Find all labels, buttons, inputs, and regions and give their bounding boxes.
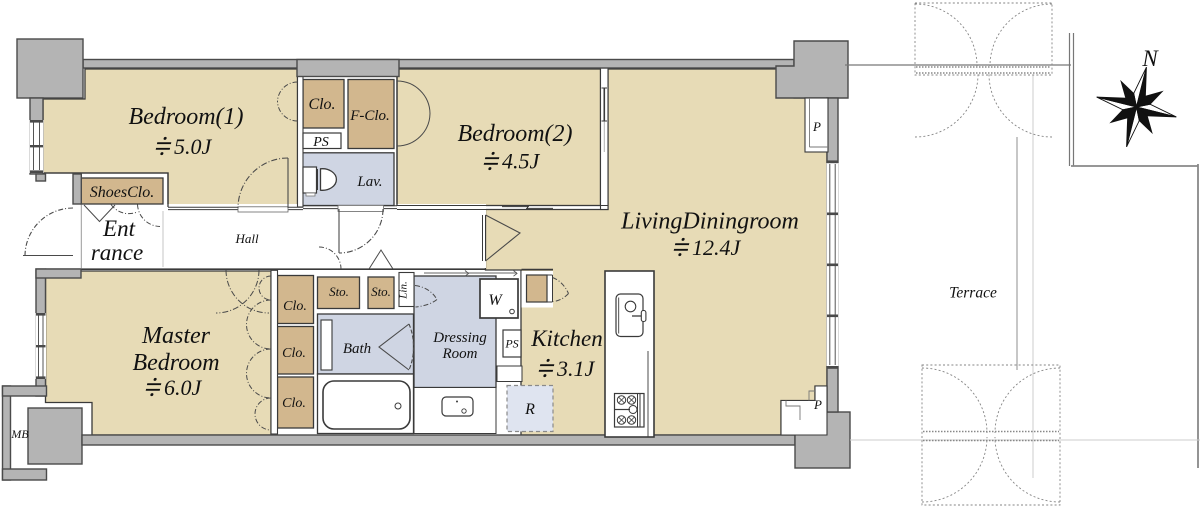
- svg-text:Clo.: Clo.: [283, 299, 307, 314]
- svg-text:rance: rance: [91, 240, 143, 265]
- svg-text:12.4J: 12.4J: [692, 235, 742, 260]
- svg-text:Sto.: Sto.: [371, 284, 391, 299]
- svg-text:Dressing: Dressing: [432, 330, 487, 346]
- svg-text:Bedroom: Bedroom: [132, 350, 219, 376]
- svg-text:Lav.: Lav.: [356, 174, 382, 190]
- svg-text:R: R: [524, 401, 535, 418]
- svg-text:4.5J: 4.5J: [502, 149, 541, 174]
- svg-text:Kitchen: Kitchen: [530, 326, 603, 351]
- svg-text:P: P: [812, 119, 821, 134]
- svg-text:W: W: [488, 292, 503, 309]
- svg-text:MB: MB: [10, 427, 29, 441]
- svg-text:F-Clo.: F-Clo.: [349, 108, 390, 124]
- svg-text:PS: PS: [504, 337, 518, 351]
- svg-text:3.1J: 3.1J: [556, 356, 596, 381]
- svg-text:Hall: Hall: [234, 231, 259, 246]
- svg-text:5.0J: 5.0J: [174, 134, 213, 159]
- svg-text:Clo.: Clo.: [282, 396, 306, 411]
- svg-text:Terrace: Terrace: [949, 285, 997, 302]
- svg-text:LivingDiningroom: LivingDiningroom: [620, 209, 799, 235]
- svg-text:Lin.: Lin.: [398, 281, 410, 299]
- svg-text:Bedroom(1): Bedroom(1): [128, 104, 243, 130]
- svg-text:N: N: [1141, 46, 1159, 71]
- svg-text:Clo.: Clo.: [282, 346, 306, 361]
- svg-text:ShoesClo.: ShoesClo.: [90, 184, 154, 201]
- svg-text:Ent: Ent: [102, 216, 136, 241]
- svg-text:Room: Room: [442, 346, 478, 362]
- svg-text:P: P: [813, 397, 822, 412]
- svg-text:Clo.: Clo.: [308, 96, 335, 113]
- svg-text:Bedroom(2): Bedroom(2): [457, 121, 572, 147]
- svg-text:PS: PS: [312, 135, 329, 150]
- svg-text:Sto.: Sto.: [329, 284, 349, 299]
- svg-text:6.0J: 6.0J: [164, 375, 203, 400]
- svg-text:Master: Master: [141, 323, 211, 349]
- svg-text:Bath: Bath: [343, 341, 371, 357]
